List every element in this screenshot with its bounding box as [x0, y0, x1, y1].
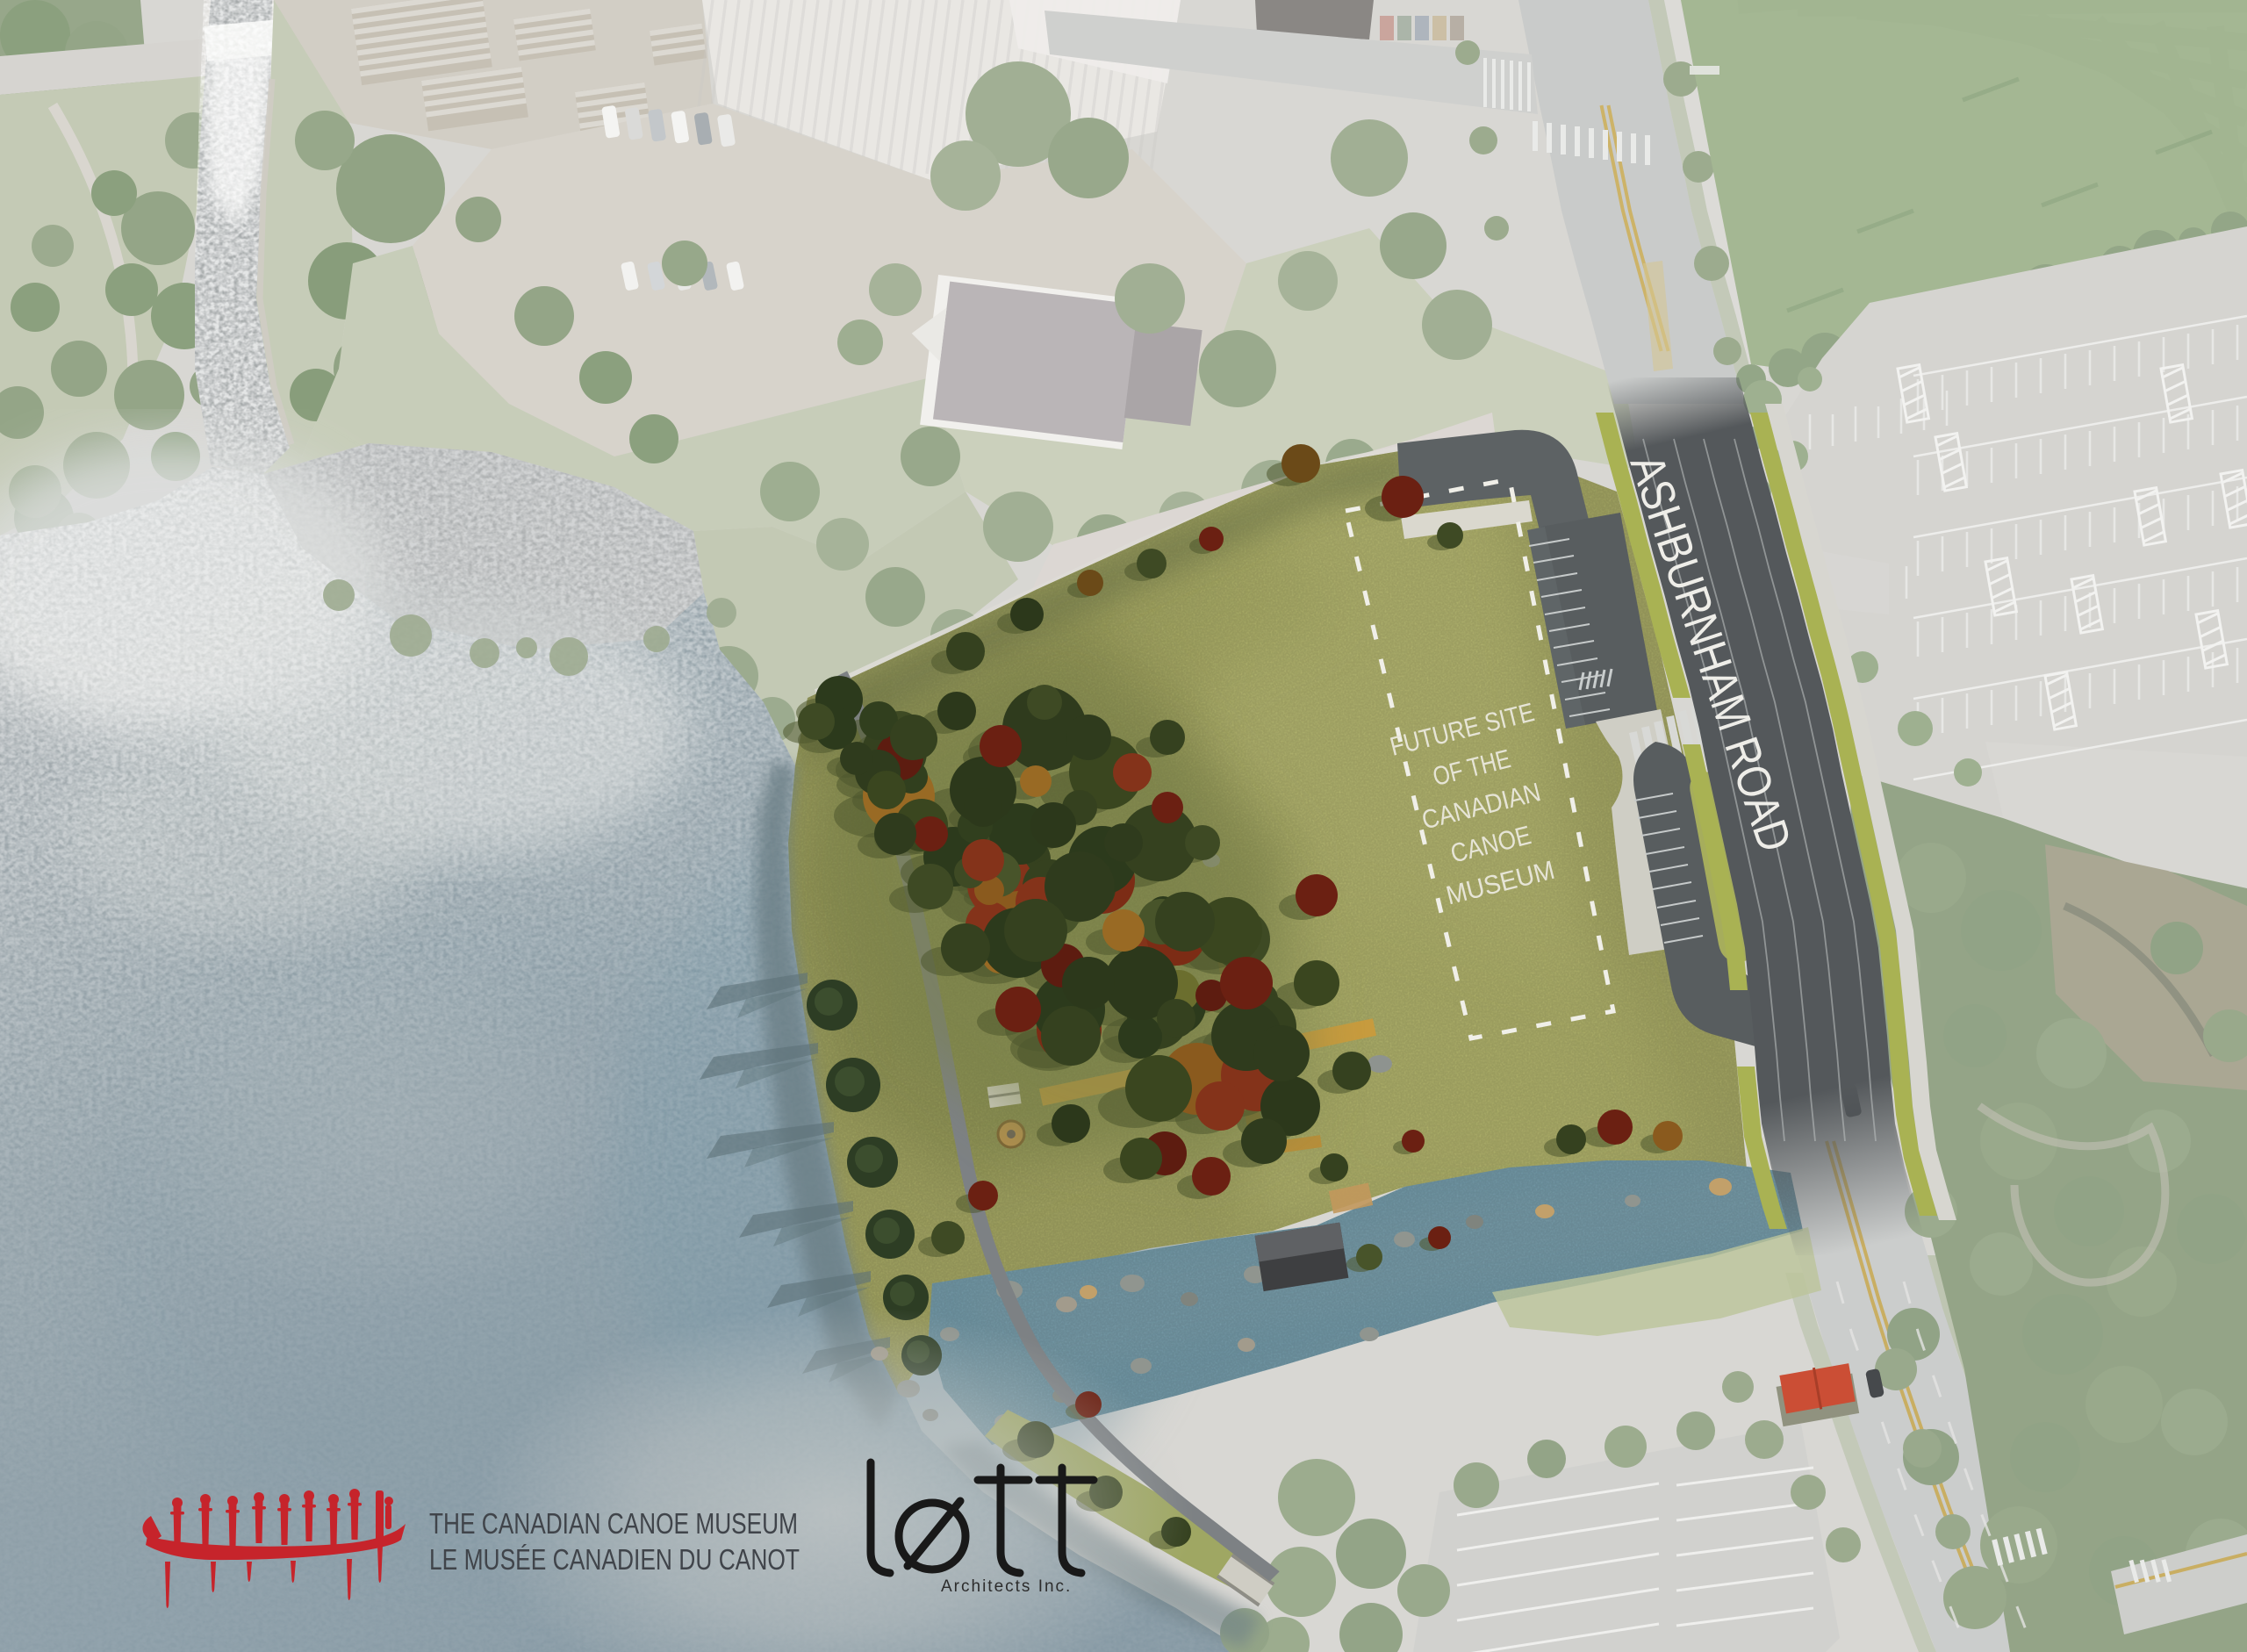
svg-text:THE CANADIAN CANOE MUSEUM: THE CANADIAN CANOE MUSEUM: [429, 1508, 798, 1541]
svg-text:Architects Inc.: Architects Inc.: [941, 1577, 1072, 1596]
svg-text:LE MUSÉE CANADIEN DU CANOT: LE MUSÉE CANADIEN DU CANOT: [429, 1544, 800, 1577]
